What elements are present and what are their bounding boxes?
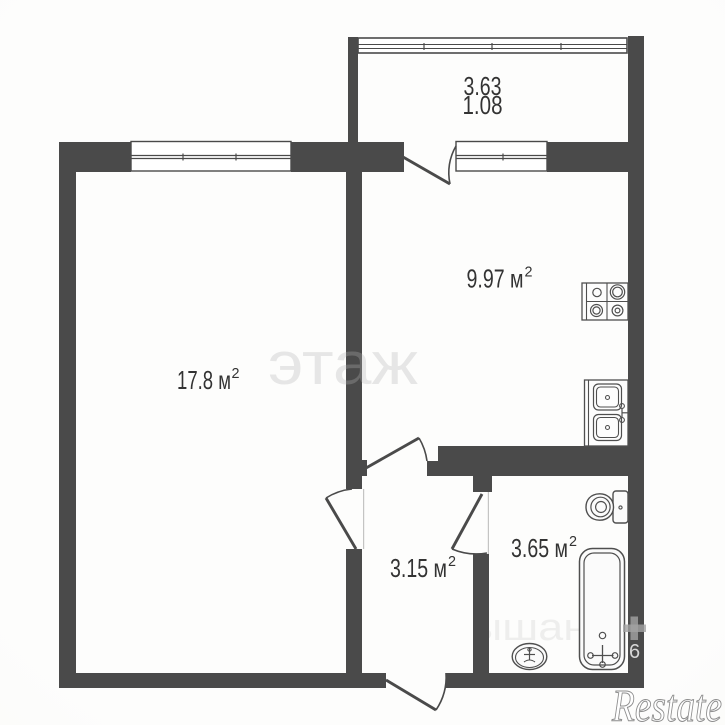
svg-text:3.65 м: 3.65 м xyxy=(511,533,568,563)
svg-text:Restate: Restate xyxy=(611,680,722,725)
svg-text:2: 2 xyxy=(448,553,456,570)
svg-text:этаж: этаж xyxy=(268,330,418,397)
svg-text:2: 2 xyxy=(569,533,577,550)
svg-text:9.97 м: 9.97 м xyxy=(467,264,524,294)
svg-text:6: 6 xyxy=(629,641,640,663)
svg-text:1.08: 1.08 xyxy=(463,90,503,120)
svg-text:17.8 м: 17.8 м xyxy=(177,365,231,395)
svg-text:2: 2 xyxy=(525,264,533,281)
svg-text:3.15 м: 3.15 м xyxy=(390,553,447,583)
svg-text:2: 2 xyxy=(232,365,240,382)
